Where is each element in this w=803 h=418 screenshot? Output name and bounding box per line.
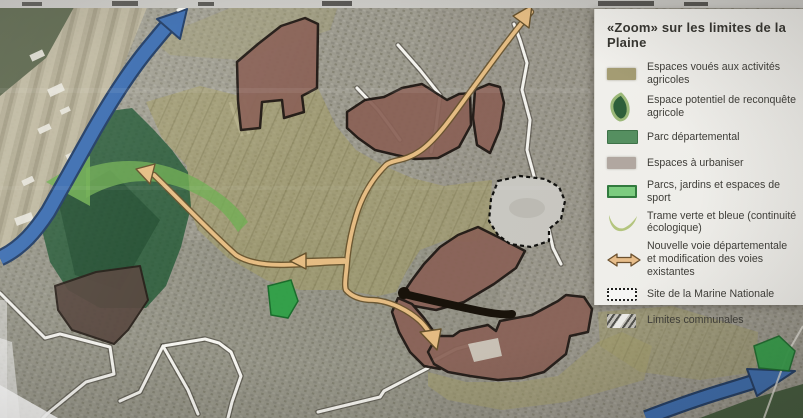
garden-swatch-icon xyxy=(607,185,637,198)
legend-title: «Zoom» sur les limites de la Plaine xyxy=(607,21,797,51)
park-swatch-icon xyxy=(607,130,638,144)
legend-item-espaces-agricoles: Espaces voués aux activités agricoles xyxy=(607,61,797,87)
legend-panel: «Zoom» sur les limites de la Plaine Espa… xyxy=(594,9,803,305)
dotted-boundary-icon xyxy=(607,288,637,301)
legend-item-limites-communales: Limites communales xyxy=(607,310,797,331)
legend-item-label: Parcs, jardins et espaces de sport xyxy=(647,179,797,205)
map-poster-photo: «Zoom» sur les limites de la Plaine Espa… xyxy=(0,0,803,418)
legend-item-trame-verte: Trame verte et bleue (continuité écologi… xyxy=(607,210,797,236)
legend-item-label: Site de la Marine Nationale xyxy=(647,288,774,301)
double-arrow-icon xyxy=(607,252,641,268)
urbanize-swatch-icon xyxy=(607,157,636,169)
legend-item-nouvelle-voie: Nouvelle voie départementale et modifica… xyxy=(607,240,797,279)
legend-item-parcs-jardins: Parcs, jardins et espaces de sport xyxy=(607,179,797,205)
legend-item-label: Espaces à urbaniser xyxy=(647,157,744,170)
legend-item-label: Parc départemental xyxy=(647,131,739,144)
legend-item-label: Espace potentiel de reconquête agricole xyxy=(647,94,797,120)
legend-item-label: Trame verte et bleue (continuité écologi… xyxy=(647,210,797,236)
green-swoosh-icon xyxy=(607,212,639,232)
legend-item-site-marine: Site de la Marine Nationale xyxy=(607,284,797,305)
legend-item-label: Nouvelle voie départementale et modifica… xyxy=(647,240,797,279)
legend-item-label: Limites communales xyxy=(647,314,744,327)
hatched-boundary-icon xyxy=(607,314,636,328)
agricultural-swatch-icon xyxy=(607,68,636,80)
legend-item-reconquete-agricole: Espace potentiel de reconquête agricole xyxy=(607,92,797,122)
legend-item-label: Espaces voués aux activités agricoles xyxy=(647,61,797,87)
leaf-icon xyxy=(607,92,633,122)
legend-item-parc-departemental: Parc départemental xyxy=(607,127,797,148)
legend-item-espaces-a-urbaniser: Espaces à urbaniser xyxy=(607,153,797,174)
